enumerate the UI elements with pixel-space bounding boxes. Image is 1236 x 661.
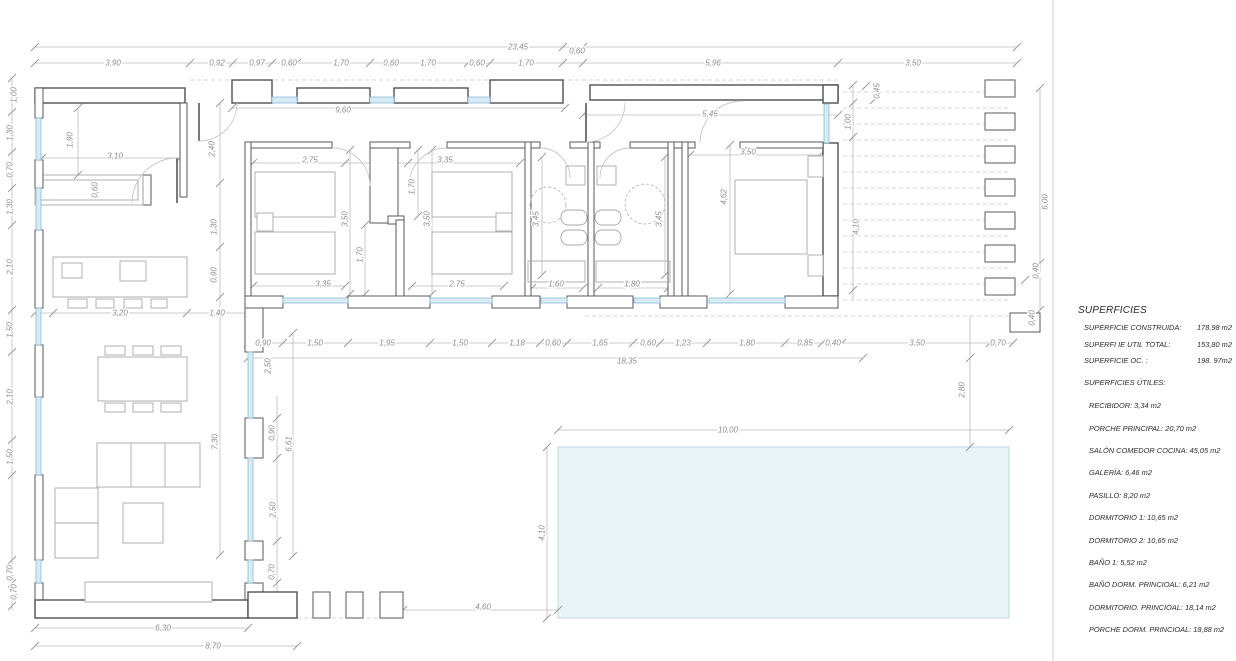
wall-segment xyxy=(245,142,251,296)
pergola-post xyxy=(985,212,1015,229)
chair xyxy=(105,346,125,355)
dimension-label: 0,92 xyxy=(209,59,225,68)
wall-segment xyxy=(35,230,43,308)
superficies-panel: SUPERFICIES SUPERFICIE CONSTRUIDA: 178.9… xyxy=(1078,305,1236,642)
window xyxy=(36,397,41,475)
dimension-label: 7,30 xyxy=(211,434,220,450)
wall-segment xyxy=(35,475,43,560)
wall-segment xyxy=(588,142,594,296)
pergola-post xyxy=(985,146,1015,163)
dimension-label: 1,30 xyxy=(6,125,15,141)
wall-segment xyxy=(297,88,370,103)
dimension-label: 1,50 xyxy=(6,322,15,338)
door-swing xyxy=(332,148,370,186)
dimension-label: 8,70 xyxy=(205,642,221,651)
dimension-label: 3,90 xyxy=(105,59,121,68)
dimension-label: 1,90 xyxy=(66,132,75,148)
dimension-label: 0,45 xyxy=(873,83,882,99)
dimension-label: 2,75 xyxy=(448,280,465,289)
dimension-label: 0,70 xyxy=(6,162,15,178)
window xyxy=(468,97,490,103)
dimension-label: 2,80 xyxy=(958,382,967,399)
nightstand xyxy=(808,255,823,276)
dimension-label: 2,10 xyxy=(6,259,15,276)
pergola-post xyxy=(985,245,1015,262)
window xyxy=(36,118,41,160)
wall-segment xyxy=(245,418,263,458)
bed xyxy=(432,232,512,274)
dimension-label: 0,90 xyxy=(268,425,277,441)
wall-segment xyxy=(590,85,838,100)
wall-segment xyxy=(245,296,283,308)
dimension-label: 1,80 xyxy=(624,280,640,289)
dining-table xyxy=(98,357,187,401)
wall-segment xyxy=(396,220,404,296)
dimension-label: 0,60 xyxy=(281,59,297,68)
room-area-line: PASILLO: 8,20 m2 xyxy=(1089,485,1236,507)
dimension-label: 3,50 xyxy=(341,211,350,227)
summary-row: SUPERFI IE UTIL TOTAL: 153,80 m2 xyxy=(1084,340,1236,349)
bidet xyxy=(561,230,587,245)
galeria-counter-inner xyxy=(40,180,138,200)
dimension-label: 1,00 xyxy=(844,114,853,130)
dimension-label: 2,10 xyxy=(6,389,15,406)
dimension-label: 1,60 xyxy=(548,280,564,289)
chair xyxy=(161,403,181,412)
dimension-label: 1,70 xyxy=(518,59,534,68)
porch-pillar xyxy=(380,592,403,618)
room-area-line: RECIBIDOR: 3,34 m2 xyxy=(1089,395,1236,417)
dimension-label: 1,00 xyxy=(10,87,19,103)
dimension-label: 18,35 xyxy=(617,357,638,366)
floor-plan-drawing: 23,450,603,900,920,970,601,700,601,700,6… xyxy=(0,0,1236,661)
floor-plan-sheet: 23,450,603,900,920,970,601,700,601,700,6… xyxy=(0,0,1236,661)
dimension-label: 0,70 xyxy=(10,584,19,600)
dimension-label: 0,85 xyxy=(797,339,813,348)
galeria-counter xyxy=(35,175,143,205)
dimension-label: 3,50 xyxy=(909,339,925,348)
pergola-post xyxy=(985,80,1015,97)
dimension-label: 0,70 xyxy=(6,565,15,581)
window xyxy=(36,188,41,230)
window xyxy=(541,298,567,303)
wall-segment xyxy=(35,160,43,188)
closet-block xyxy=(370,148,398,223)
window xyxy=(248,352,253,418)
wall-segment xyxy=(245,541,263,560)
dimension-label: 0,90 xyxy=(255,339,271,348)
dimension-label: 1,30 xyxy=(210,219,219,235)
stool xyxy=(151,299,167,308)
dimension-label: 1,50 xyxy=(307,339,323,348)
dimension-label: 0,40 xyxy=(825,339,841,348)
window xyxy=(283,298,348,303)
pergola-post xyxy=(985,179,1015,196)
nightstand xyxy=(257,213,273,231)
window xyxy=(709,298,785,303)
bidet xyxy=(595,230,621,245)
superficies-summary: SUPERFICIE CONSTRUIDA: 178.98 m2 SUPERFI… xyxy=(1078,323,1236,365)
window xyxy=(272,97,297,103)
wall-segment xyxy=(180,103,187,197)
wall-segment xyxy=(668,142,674,296)
dimension-label: 6,30 xyxy=(155,624,171,633)
coffee-table xyxy=(123,503,163,543)
pergola-post xyxy=(985,278,1015,295)
room-area-line: DORMITORIO 2: 10,65 m2 xyxy=(1089,530,1236,552)
wall-segment xyxy=(492,296,540,308)
dimension-label: 2,50 xyxy=(264,358,273,375)
wall-segment xyxy=(35,345,43,397)
wall-segment xyxy=(35,88,43,118)
tv-unit xyxy=(85,582,212,602)
room-areas-list: RECIBIDOR: 3,34 m2PORCHE PRINCIPAL: 20,7… xyxy=(1078,395,1236,641)
dimension-label: 1,70 xyxy=(420,59,436,68)
dimension-label: 2,50 xyxy=(269,502,278,519)
window xyxy=(634,298,660,303)
window xyxy=(36,560,41,583)
wall-segment xyxy=(660,296,707,308)
wall-segment xyxy=(35,88,185,103)
window xyxy=(36,308,41,345)
dimension-label: 3,45 xyxy=(532,211,541,227)
room-area-line: BAÑO 1: 5,52 m2 xyxy=(1089,552,1236,574)
dimension-label: 1,18 xyxy=(509,339,525,348)
door-swing xyxy=(700,101,742,143)
bed xyxy=(255,172,335,217)
wall-segment xyxy=(370,142,410,148)
wall-segment xyxy=(823,143,838,296)
dimension-label: 3,35 xyxy=(437,156,453,165)
dimension-label: 9,60 xyxy=(335,106,351,115)
dimension-label: 1,65 xyxy=(592,339,608,348)
dimension-label: 6,61 xyxy=(285,436,294,452)
nightstand xyxy=(808,156,823,177)
room-area-line: PORCHE PRINCIPAL: 20,70 m2 xyxy=(1089,418,1236,440)
dimension-label: 5,96 xyxy=(705,59,721,68)
toilet xyxy=(595,210,621,225)
door-swing xyxy=(540,148,570,178)
chair xyxy=(133,346,153,355)
window xyxy=(370,97,394,103)
porch-pier xyxy=(232,80,272,103)
dimension-label: 4,62 xyxy=(720,189,729,205)
dimension-label: 3,20 xyxy=(112,309,128,318)
dimension-label: 1,70 xyxy=(356,247,365,263)
swimming-pool xyxy=(558,447,1009,618)
door-swing xyxy=(132,158,177,203)
dimension-label: 1,80 xyxy=(739,339,755,348)
window xyxy=(824,104,829,143)
stool xyxy=(68,299,87,308)
dimension-label: 1,30 xyxy=(6,199,15,215)
chair xyxy=(133,403,153,412)
summary-row: SUPERFICIE OC. : 198. 97m2 xyxy=(1084,356,1236,365)
toilet xyxy=(561,210,587,225)
bed xyxy=(735,180,807,254)
window xyxy=(248,458,253,541)
dimension-label: 10,00 xyxy=(718,426,739,435)
door-swing xyxy=(586,103,625,142)
dimension-label: 1,23 xyxy=(675,339,691,348)
pergola-post xyxy=(985,113,1015,130)
room-area-line: SALÓN COMEDOR COCINA: 45,05 m2 xyxy=(1089,440,1236,462)
dimension-label: 0,60 xyxy=(640,339,656,348)
porch-pier xyxy=(490,80,563,103)
wall-segment xyxy=(785,296,838,308)
dimension-label: 3,50 xyxy=(423,211,432,227)
dimension-label: 23,45 xyxy=(507,43,529,52)
dimension-label: 3,50 xyxy=(905,59,921,68)
dimension-label: 1,95 xyxy=(379,339,395,348)
dimension-label: 1,50 xyxy=(452,339,468,348)
window xyxy=(430,298,492,303)
wall-segment xyxy=(143,175,151,205)
summary-row: SUPERFICIE CONSTRUIDA: 178.98 m2 xyxy=(1084,323,1236,332)
dimension-label: 0,70 xyxy=(990,339,1006,348)
chair xyxy=(161,346,181,355)
dimension-label: 2,40 xyxy=(208,141,217,158)
dimension-label: 0,60 xyxy=(91,182,100,198)
room-area-line: PORCHE DORM. PRINCIOAL: 18,88 m2 xyxy=(1089,619,1236,641)
dimension-label: 3,50 xyxy=(740,148,756,157)
pergola-deck xyxy=(843,80,1040,332)
superficies-title: SUPERFICIES xyxy=(1078,305,1236,316)
dim-tick xyxy=(1021,276,1029,284)
porch-pillar xyxy=(346,592,363,618)
dimension-label: 3,45 xyxy=(655,211,664,227)
wall-corner xyxy=(248,592,297,618)
wall-segment xyxy=(348,296,430,308)
room-area-line: DORMITORIO 1: 10,65 m2 xyxy=(1089,507,1236,529)
dimension-label: 0,40 xyxy=(1028,310,1037,326)
dimension-label: 4,10 xyxy=(852,219,861,235)
dim-tick xyxy=(862,82,870,90)
dimension-label: 0,60 xyxy=(469,59,485,68)
wall-segment xyxy=(35,600,248,618)
dimension-label: 1,50 xyxy=(6,449,15,465)
stool xyxy=(124,299,142,308)
stool xyxy=(96,299,114,308)
wall-segment xyxy=(394,88,468,103)
bed xyxy=(255,232,335,274)
dimension-label: 6,00 xyxy=(1041,194,1050,210)
dimension-label: 4,60 xyxy=(475,603,491,612)
dimension-label: 4,10 xyxy=(538,525,547,541)
wall-segment xyxy=(567,296,633,308)
window xyxy=(248,560,253,583)
dimension-label: 0,60 xyxy=(545,339,561,348)
porch-pillar xyxy=(313,592,330,618)
wall-segment xyxy=(682,142,688,296)
dimension-label: 0,70 xyxy=(268,564,277,580)
dimension-label: 0,60 xyxy=(383,59,399,68)
chair xyxy=(105,403,125,412)
dimension-label: 0,40 xyxy=(1032,263,1041,279)
wall-segment xyxy=(570,142,600,148)
dimension-label: 0,60 xyxy=(569,47,585,56)
room-area-line: DORMITORIO. PRINCIOAL: 18,14 m2 xyxy=(1089,597,1236,619)
dimension-label: 2,75 xyxy=(301,156,318,165)
dimension-label: 3,35 xyxy=(315,280,331,289)
dimension-label: 5,45 xyxy=(702,110,718,119)
bed xyxy=(432,172,512,217)
dimension-label: 0,97 xyxy=(249,59,265,68)
superficies-utiles-title: SUPERFICIES ÚTILES: xyxy=(1078,378,1236,387)
nightstand xyxy=(496,213,512,231)
room-area-line: GALERÍA: 6,46 m2 xyxy=(1089,462,1236,484)
dimension-label: 1,70 xyxy=(333,59,349,68)
dimension-label: 3,10 xyxy=(107,152,123,161)
wall-segment xyxy=(245,142,332,148)
dimension-label: 1,40 xyxy=(209,309,225,318)
sofa xyxy=(97,443,200,487)
dimension-label: 1,70 xyxy=(408,179,417,195)
wall-segment xyxy=(823,85,838,103)
room-area-line: BAÑO DORM. PRINCIOAL: 6,21 m2 xyxy=(1089,574,1236,596)
dimension-label: 0,90 xyxy=(210,267,219,283)
